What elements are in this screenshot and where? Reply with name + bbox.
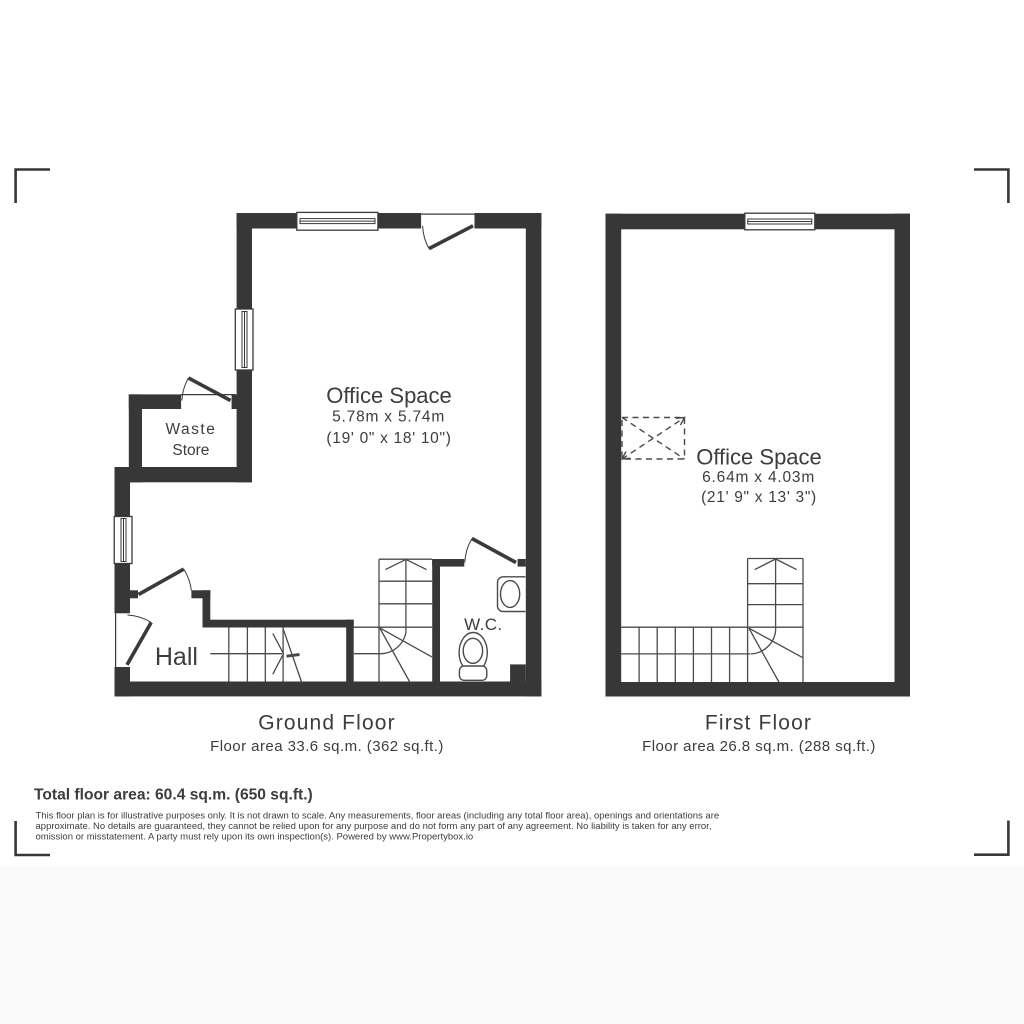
svg-text:Floor area 26.8 sq.m. (288 sq.: Floor area 26.8 sq.m. (288 sq.ft.) xyxy=(642,738,876,755)
svg-text:approximate. No details are gu: approximate. No details are guaranteed, … xyxy=(36,821,712,832)
svg-text:Waste: Waste xyxy=(165,421,216,438)
svg-text:Hall: Hall xyxy=(155,643,198,671)
svg-text:5.78m x 5.74m: 5.78m x 5.74m xyxy=(332,408,445,425)
svg-text:First Floor: First Floor xyxy=(705,711,812,734)
svg-text:Floor area 33.6 sq.m. (362 sq.: Floor area 33.6 sq.m. (362 sq.ft.) xyxy=(210,738,444,755)
svg-text:Office Space: Office Space xyxy=(696,445,822,470)
svg-text:This floor plan is for illustr: This floor plan is for illustrative purp… xyxy=(36,810,720,821)
svg-text:Total floor area: 60.4 sq.m. (: Total floor area: 60.4 sq.m. (650 sq.ft.… xyxy=(34,787,313,804)
svg-text:W.C.: W.C. xyxy=(464,615,502,634)
svg-text:(19' 0" x 18' 10"): (19' 0" x 18' 10") xyxy=(326,430,451,447)
svg-text:Store: Store xyxy=(172,442,209,459)
svg-text:Office Space: Office Space xyxy=(326,383,452,408)
svg-text:(21' 9" x 13' 3"): (21' 9" x 13' 3") xyxy=(701,489,817,506)
svg-text:omission or misstatement. A pa: omission or misstatement. A party must r… xyxy=(36,832,474,843)
svg-text:Ground Floor: Ground Floor xyxy=(258,711,396,734)
svg-text:6.64m x 4.03m: 6.64m x 4.03m xyxy=(702,469,815,486)
